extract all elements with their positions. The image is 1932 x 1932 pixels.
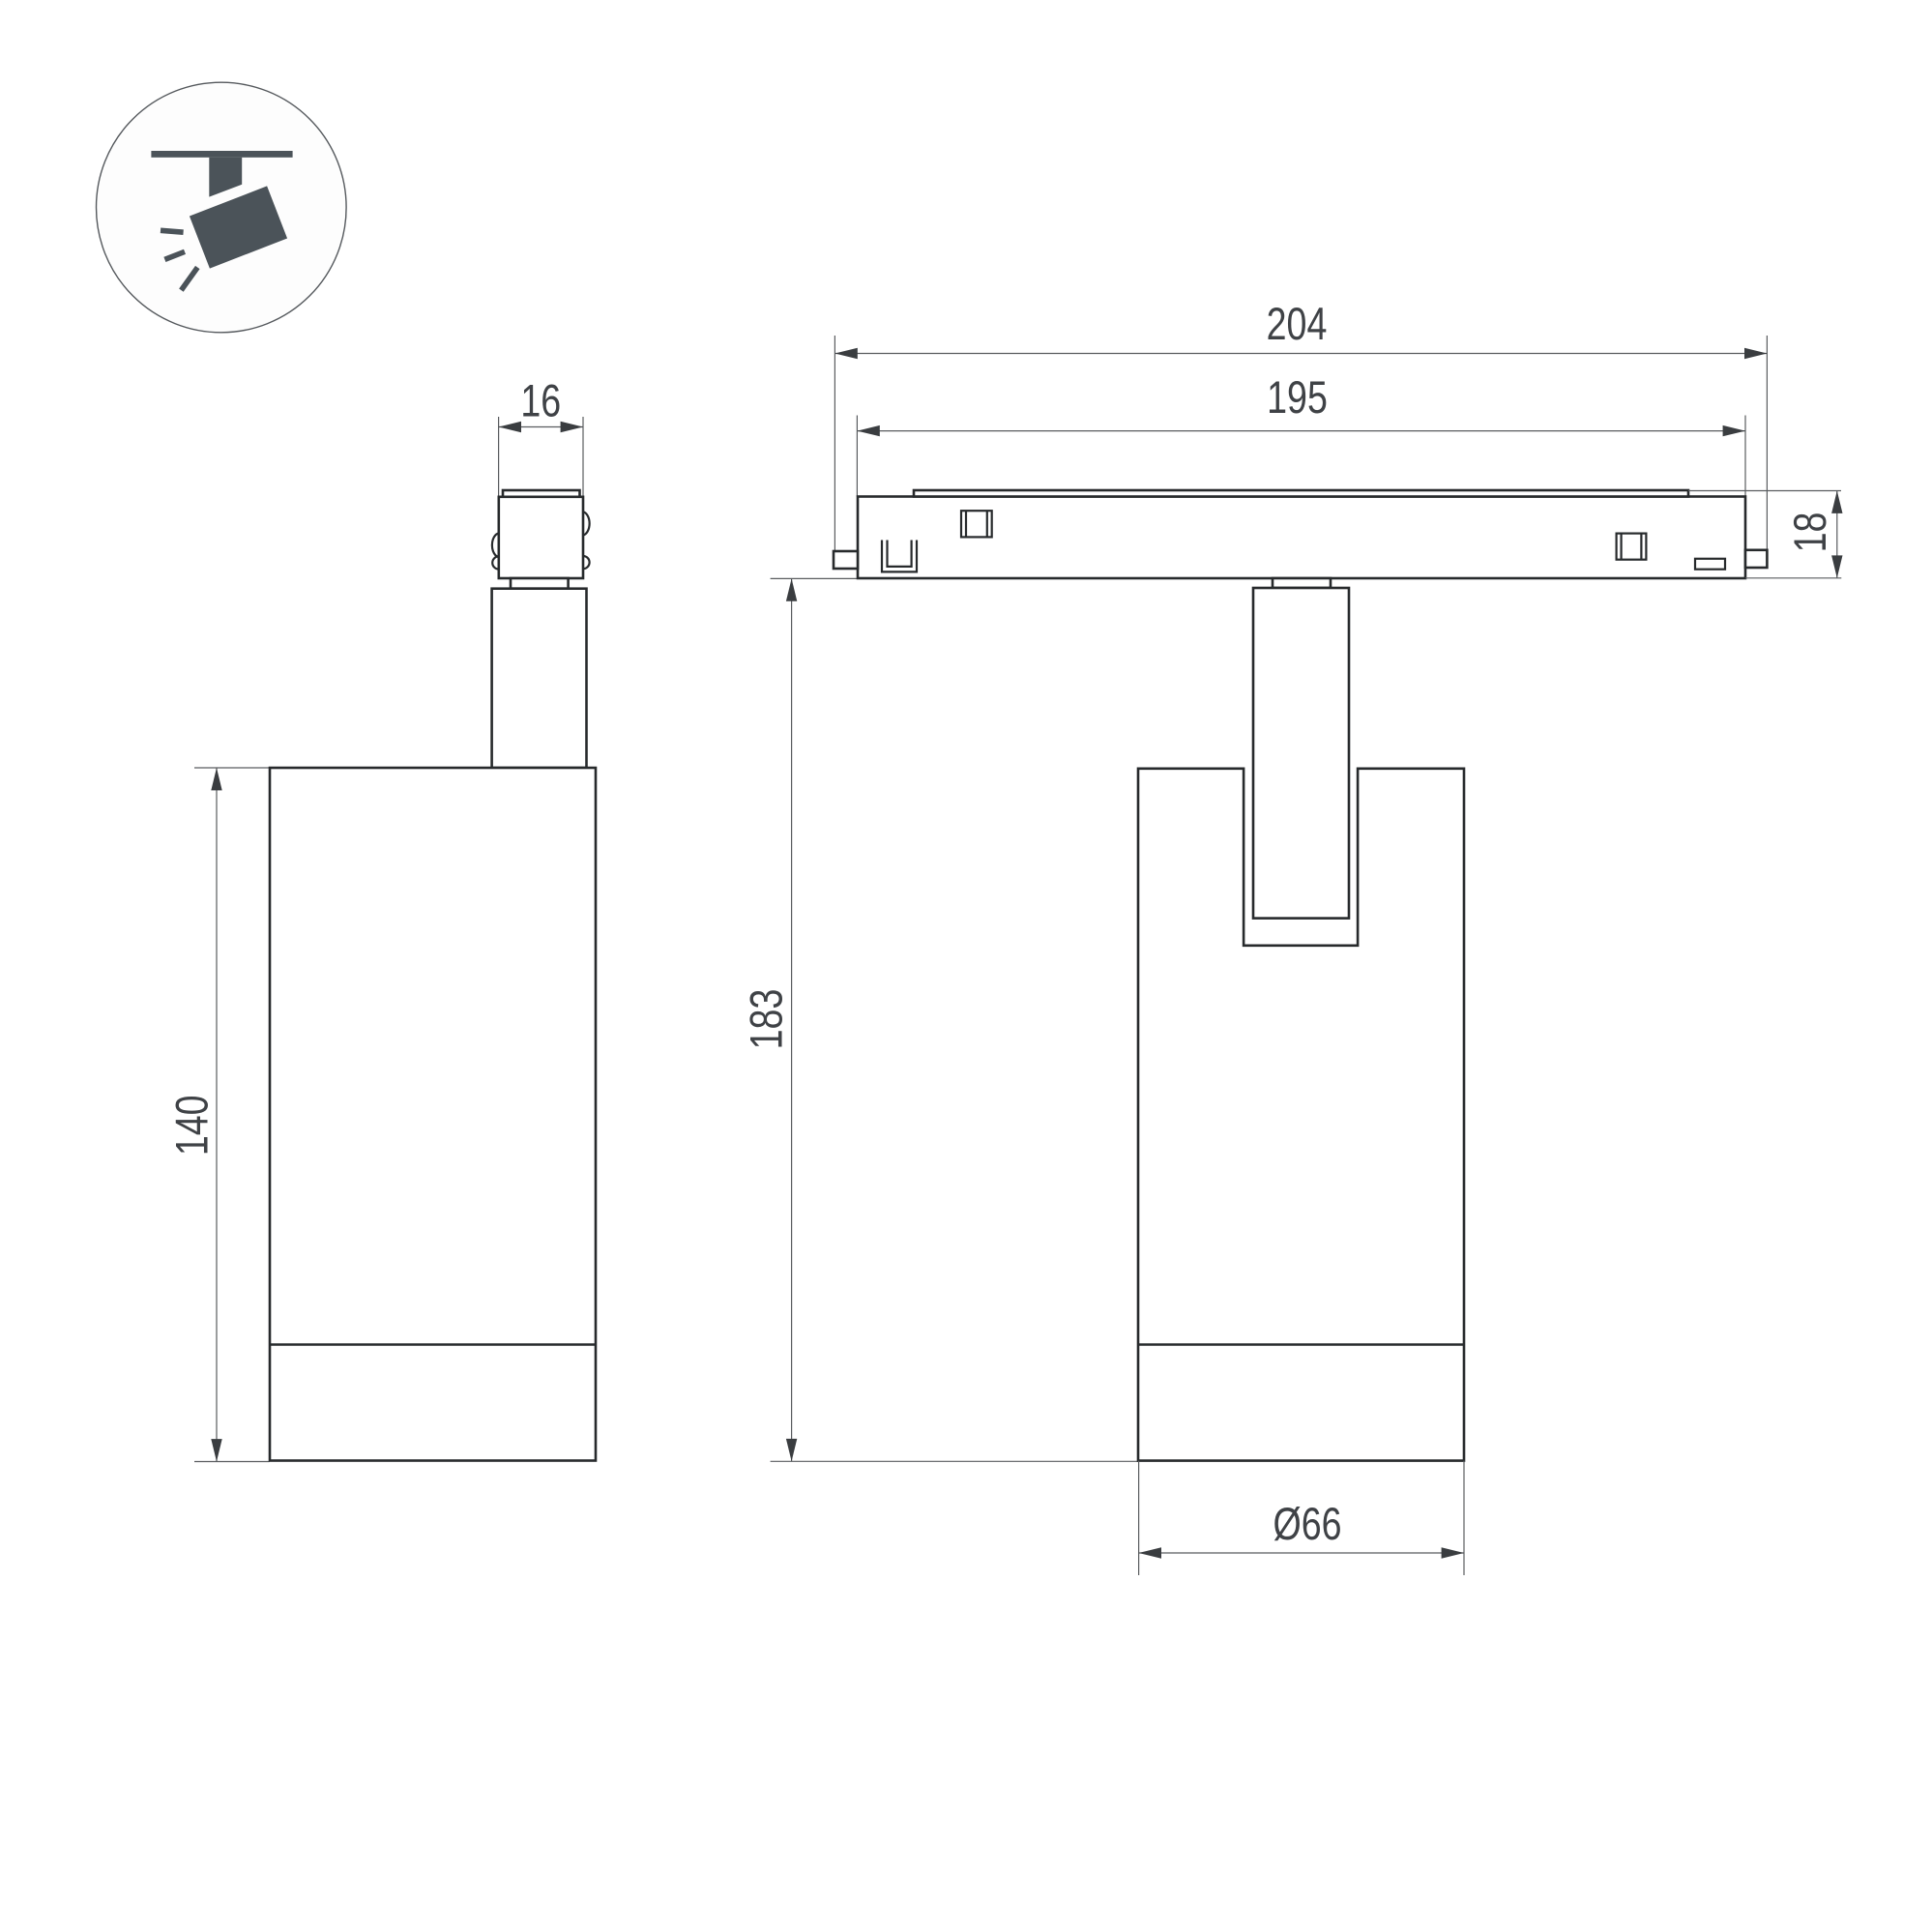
svg-text:195: 195 — [1267, 372, 1328, 424]
svg-text:204: 204 — [1267, 299, 1328, 350]
svg-text:183: 183 — [742, 989, 793, 1050]
svg-text:140: 140 — [167, 1095, 219, 1156]
svg-text:Ø66: Ø66 — [1273, 1499, 1341, 1550]
svg-text:16: 16 — [520, 376, 561, 427]
svg-text:18: 18 — [1785, 512, 1836, 553]
